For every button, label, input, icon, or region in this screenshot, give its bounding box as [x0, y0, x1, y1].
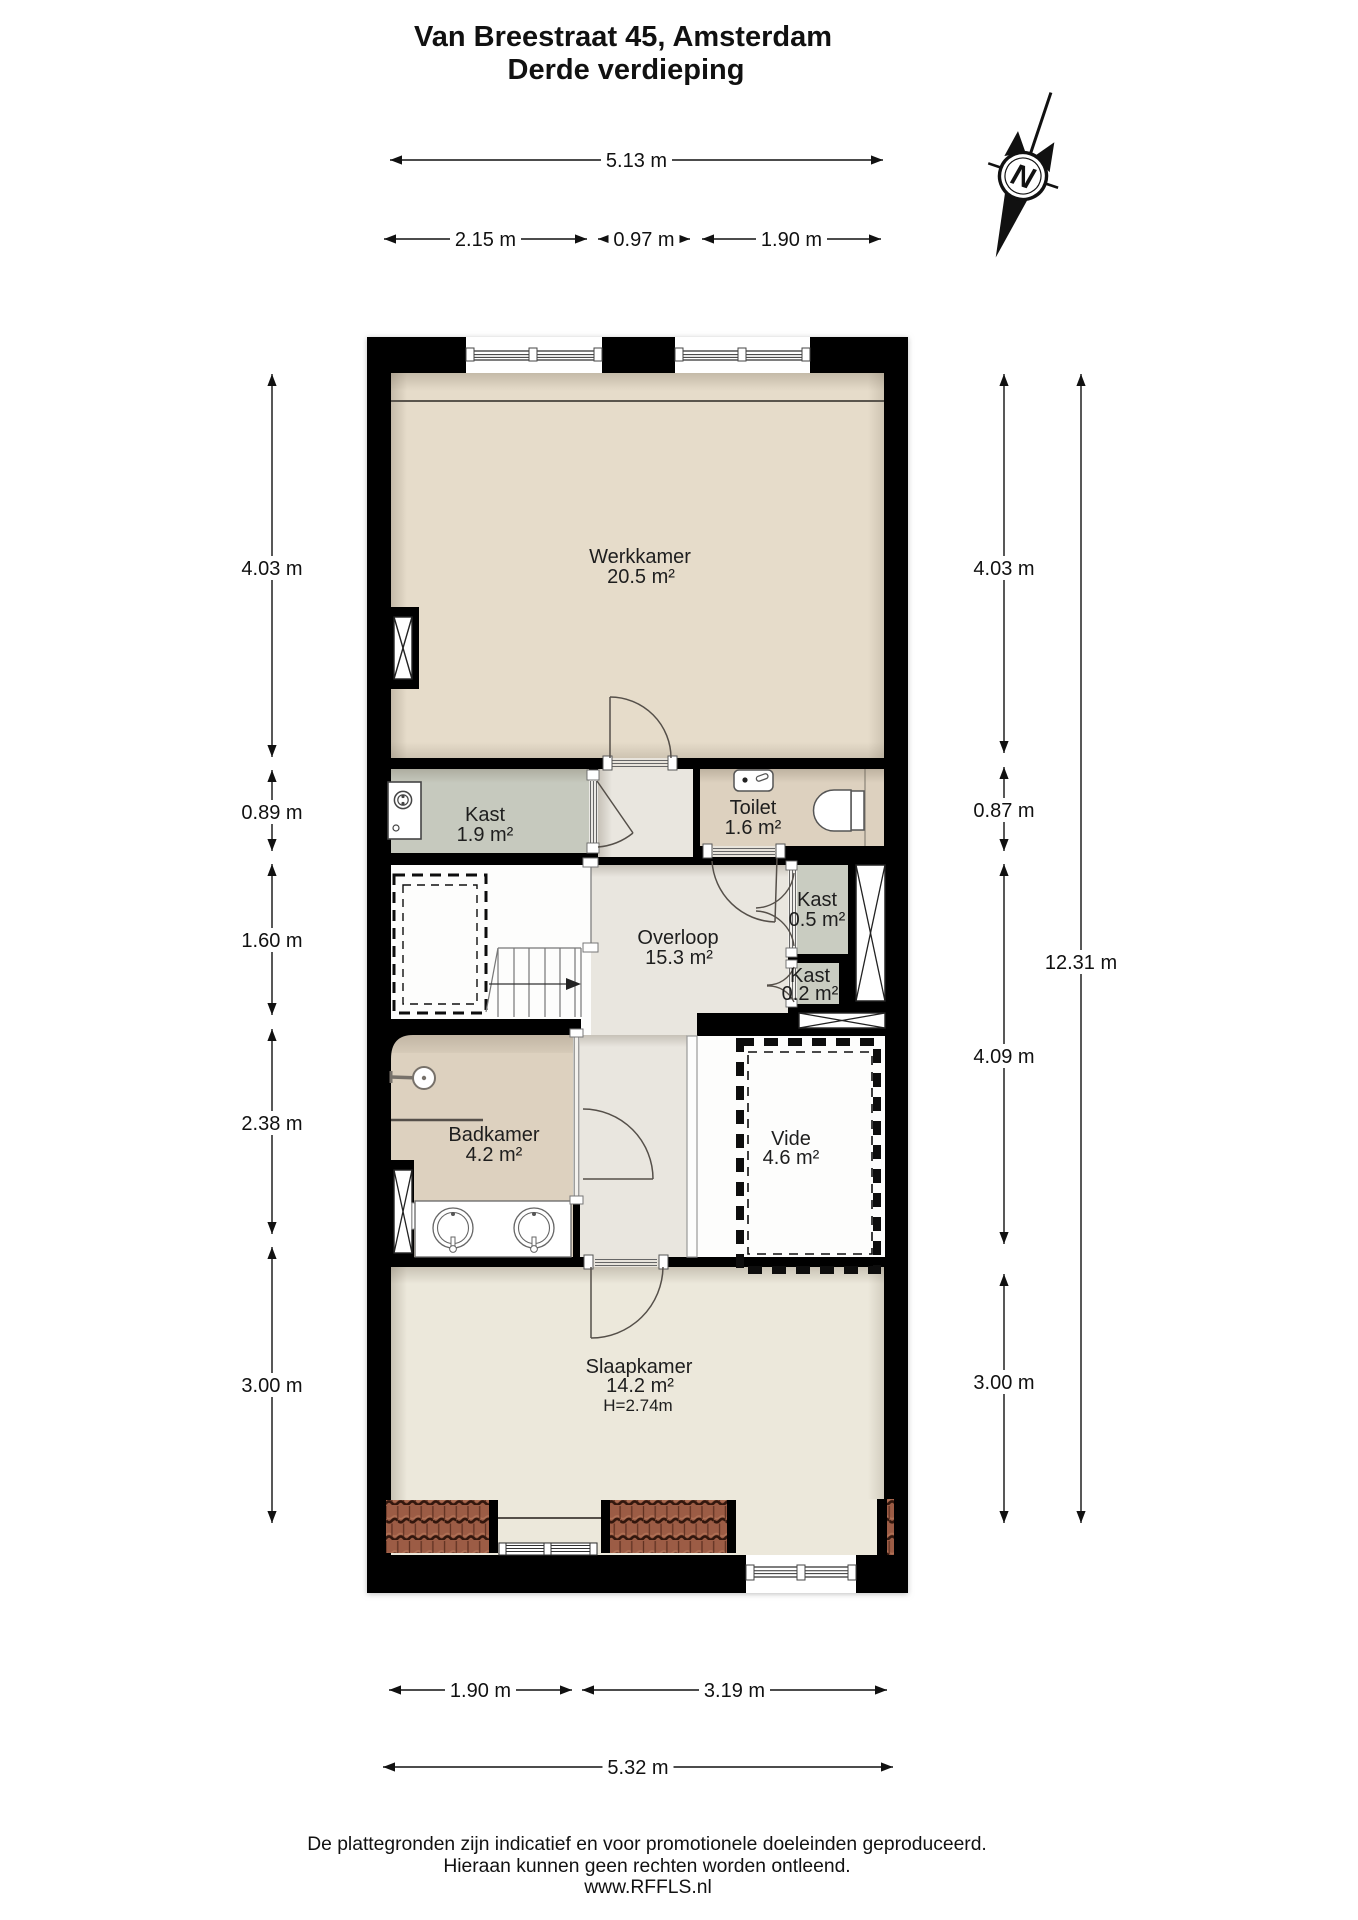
- svg-text:Hieraan kunnen geen rechten wo: Hieraan kunnen geen rechten worden ontle…: [443, 1856, 850, 1877]
- svg-text:1.90 m: 1.90 m: [761, 229, 822, 251]
- svg-text:1.90 m: 1.90 m: [450, 1680, 511, 1702]
- svg-text:1.6 m²: 1.6 m²: [725, 817, 782, 839]
- svg-text:1.60 m: 1.60 m: [241, 930, 302, 952]
- svg-text:H=2.74m: H=2.74m: [603, 1396, 672, 1415]
- svg-text:4.03 m: 4.03 m: [973, 558, 1034, 580]
- svg-text:Badkamer: Badkamer: [448, 1124, 539, 1146]
- svg-text:www.RFFLS.nl: www.RFFLS.nl: [583, 1877, 712, 1898]
- svg-text:Kast: Kast: [465, 804, 505, 826]
- svg-text:0.5 m²: 0.5 m²: [789, 909, 846, 931]
- svg-text:3.00 m: 3.00 m: [241, 1375, 302, 1397]
- svg-text:20.5 m²: 20.5 m²: [607, 566, 675, 588]
- svg-text:3.00 m: 3.00 m: [973, 1372, 1034, 1394]
- svg-text:2.38 m: 2.38 m: [241, 1113, 302, 1135]
- svg-text:0.87 m: 0.87 m: [973, 800, 1034, 822]
- svg-text:Werkkamer: Werkkamer: [589, 546, 691, 568]
- svg-text:12.31 m: 12.31 m: [1045, 952, 1117, 974]
- svg-text:1.9 m²: 1.9 m²: [457, 824, 514, 846]
- svg-text:De plattegronden zijn indicati: De plattegronden zijn indicatief en voor…: [307, 1834, 987, 1855]
- svg-text:4.03 m: 4.03 m: [241, 558, 302, 580]
- svg-text:Overloop: Overloop: [637, 927, 718, 949]
- svg-text:Toilet: Toilet: [730, 797, 777, 819]
- svg-text:14.2 m²: 14.2 m²: [606, 1375, 674, 1397]
- svg-text:4.2 m²: 4.2 m²: [466, 1144, 523, 1166]
- svg-text:Van Breestraat 45, Amsterdam: Van Breestraat 45, Amsterdam: [414, 21, 832, 53]
- svg-text:5.32 m: 5.32 m: [607, 1757, 668, 1779]
- svg-text:0.89 m: 0.89 m: [241, 802, 302, 824]
- svg-text:4.6 m²: 4.6 m²: [763, 1147, 820, 1169]
- svg-text:2.15 m: 2.15 m: [455, 229, 516, 251]
- svg-text:Derde verdieping: Derde verdieping: [508, 54, 745, 86]
- svg-text:15.3 m²: 15.3 m²: [645, 947, 713, 969]
- svg-text:0.2 m²: 0.2 m²: [782, 983, 839, 1005]
- svg-text:Kast: Kast: [797, 889, 837, 911]
- svg-text:4.09 m: 4.09 m: [973, 1046, 1034, 1068]
- svg-text:3.19 m: 3.19 m: [704, 1680, 765, 1702]
- svg-text:5.13 m: 5.13 m: [606, 150, 667, 172]
- svg-text:0.97 m: 0.97 m: [613, 229, 674, 251]
